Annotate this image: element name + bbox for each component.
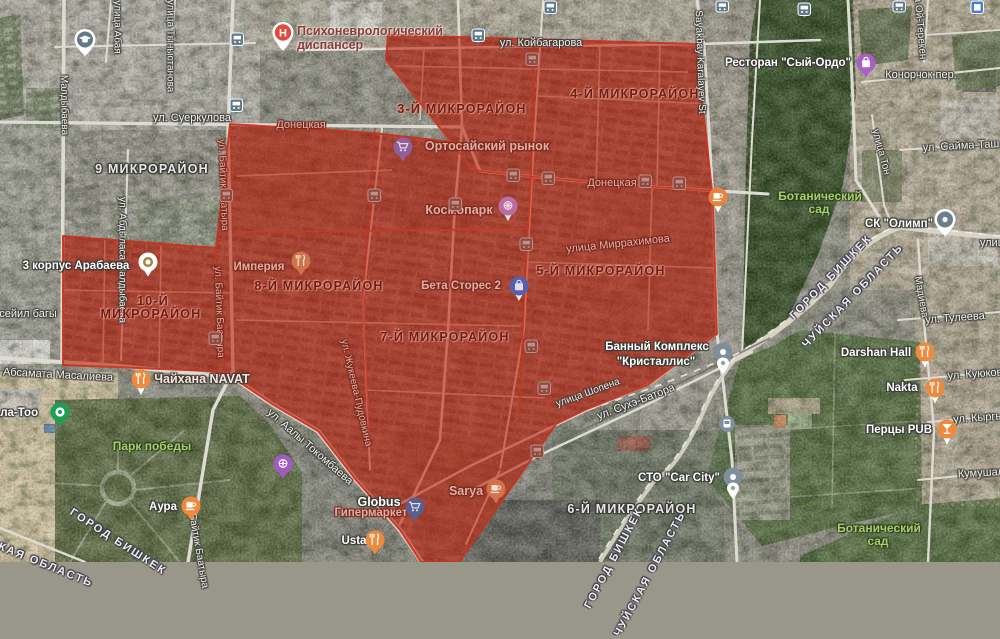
svg-text:H: H	[279, 28, 287, 40]
